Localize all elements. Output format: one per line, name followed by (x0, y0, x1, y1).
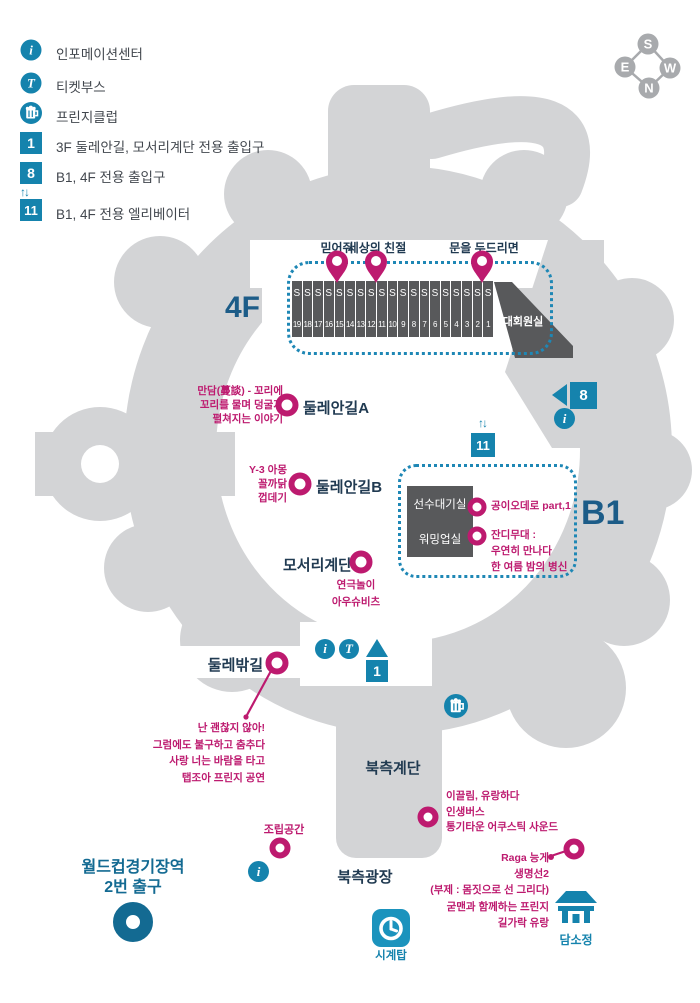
stall-s8: S8 (409, 281, 419, 337)
dulle-b-label: 둘레안길B (316, 476, 382, 497)
gate-8-icon: 8 (20, 162, 42, 184)
map-info-icon-east: i (554, 408, 575, 429)
map-info-icon-center: i (315, 639, 335, 659)
marker-dulle-b (289, 473, 312, 496)
info-icon: i (21, 40, 42, 61)
moseori-label: 모서리계단 (252, 554, 352, 575)
stall-s15: S15 (335, 281, 345, 337)
marker-waiting-room (468, 498, 487, 517)
stall-s2: S2 (473, 281, 483, 337)
north-stairs-label: 북측계단 (365, 757, 420, 778)
program-dullebak: 난 괜찮지 않아! 그럼에도 불구하고 춤추다 사랑 너는 바람을 타고 탭조아… (110, 720, 265, 786)
program-waiting-room: 공이오데로 part,1 (491, 501, 571, 512)
program-moseori: 연극놀이 아우슈비츠 (302, 577, 410, 611)
jorip-label: 조립공간 (264, 825, 304, 836)
stall-row: S19S18S17S16S15S14S13S12S11S10S9S8S7S6S5… (292, 281, 493, 337)
marker-jorip (270, 838, 291, 859)
gate-1-arrow-icon (366, 639, 388, 657)
stall-s6: S6 (430, 281, 440, 337)
updown-arrows-icon: ↑↓ (20, 185, 28, 199)
stall-s13: S13 (356, 281, 366, 337)
fringe-festival-venue-map: i 인포메이션센터 T 티켓부스 프린지클럽 1 3F 둘레안길, 모서리계단 … (0, 0, 700, 1003)
legend-label-beer: 프린지클럽 (56, 106, 118, 126)
program-raga: Raga 능게 생명선2 (부제 : 몸짓으로 선 그리다) 굳맨과 함께하는 … (420, 850, 549, 931)
compass-left: E (621, 60, 630, 75)
compass-right: W (664, 61, 677, 76)
north-plaza-label: 북측광장 (337, 866, 392, 887)
map-ticket-icon: T (339, 639, 359, 659)
damsojeong-label: 담소정 (559, 931, 592, 948)
compass-rose: S E W N (608, 28, 688, 102)
beer-icon (20, 102, 42, 124)
gate-1-icon: 1 (20, 132, 42, 154)
program-lawn-stage: 잔디무대 : 우연히 만나다 한 여름 밤의 병신 (491, 528, 567, 575)
compass-top: S (644, 37, 653, 52)
ticket-icon: T (21, 73, 42, 94)
gate-8-arrow-icon (552, 384, 567, 406)
map-pin (364, 250, 388, 284)
stall-s10: S10 (388, 281, 398, 337)
legend-label-ticket: 티켓부스 (56, 76, 106, 96)
stall-s16: S16 (324, 281, 334, 337)
stall-s14: S14 (345, 281, 355, 337)
marker-ikkeullim (418, 807, 439, 828)
stall-s12: S12 (366, 281, 376, 337)
stall-s7: S7 (420, 281, 430, 337)
marker-warmup-room (468, 527, 487, 546)
floor-4f-label: 4F (225, 291, 260, 325)
program-dulle-a: 만담(蔓談) - 꼬리에 꼬리를 물며 덩굴져 펼쳐지는 이야기 (143, 385, 283, 426)
stall-s9: S9 (398, 281, 408, 337)
floor-b1-label: B1 (581, 494, 624, 533)
program-dulle-b: Y-3 아몽 꼴까닭 껍데기 (177, 463, 287, 506)
stall-s18: S18 (303, 281, 313, 337)
map-elevator-icon: 11 (471, 433, 495, 457)
b1-room-box: 선수대기실 워밍업실 (407, 486, 473, 557)
legend-label-gate8: B1, 4F 전용 출입구 (56, 166, 165, 186)
stall-s19: S19 (292, 281, 302, 337)
map-gate-8-icon: 8 (570, 382, 597, 409)
legend-label-info: 인포메이션센터 (56, 43, 143, 63)
map-beer-icon (444, 694, 468, 718)
program-ikkeullim: 이끌림, 유랑하다 인생버스 통기타운 어쿠스틱 사운드 (446, 789, 558, 836)
legend-label-elevator: B1, 4F 전용 엘리베이터 (56, 203, 190, 223)
marker-dulle-a (276, 394, 299, 417)
marker-dullebak (266, 652, 289, 675)
legend-label-gate1: 3F 둘레안길, 모서리계단 전용 출입구 (56, 136, 264, 156)
stall-s11: S11 (377, 281, 387, 337)
dullebak-label: 둘레밖길 (163, 654, 263, 675)
players-waiting-room-label: 선수대기실 (414, 496, 467, 512)
conference-room-label: 대회원실 (489, 313, 557, 329)
map-updown-arrows-icon: ↑↓ (468, 416, 496, 430)
map-pin (325, 250, 349, 284)
marker-raga (564, 839, 585, 860)
stall-s4: S4 (451, 281, 461, 337)
compass-bottom: N (644, 81, 653, 96)
map-gate-1-icon: 1 (366, 660, 388, 682)
station-exit-marker (113, 902, 153, 942)
stall-s3: S3 (462, 281, 472, 337)
elevator-icon: 11 (20, 199, 42, 221)
clock-tower-label: 시계탑 (375, 947, 407, 963)
dulle-a-label: 둘레안길A (303, 397, 369, 418)
map-pin (470, 250, 494, 284)
station-label: 월드컵경기장역 2번 출구 (81, 858, 184, 898)
clock-tower-icon (372, 909, 410, 947)
marker-moseori (350, 551, 373, 574)
stall-s17: S17 (313, 281, 323, 337)
map-info-icon-south: i (248, 861, 269, 882)
stall-s5: S5 (441, 281, 451, 337)
pavilion-icon (553, 888, 599, 928)
warmup-room-label: 워밍업실 (419, 531, 461, 547)
